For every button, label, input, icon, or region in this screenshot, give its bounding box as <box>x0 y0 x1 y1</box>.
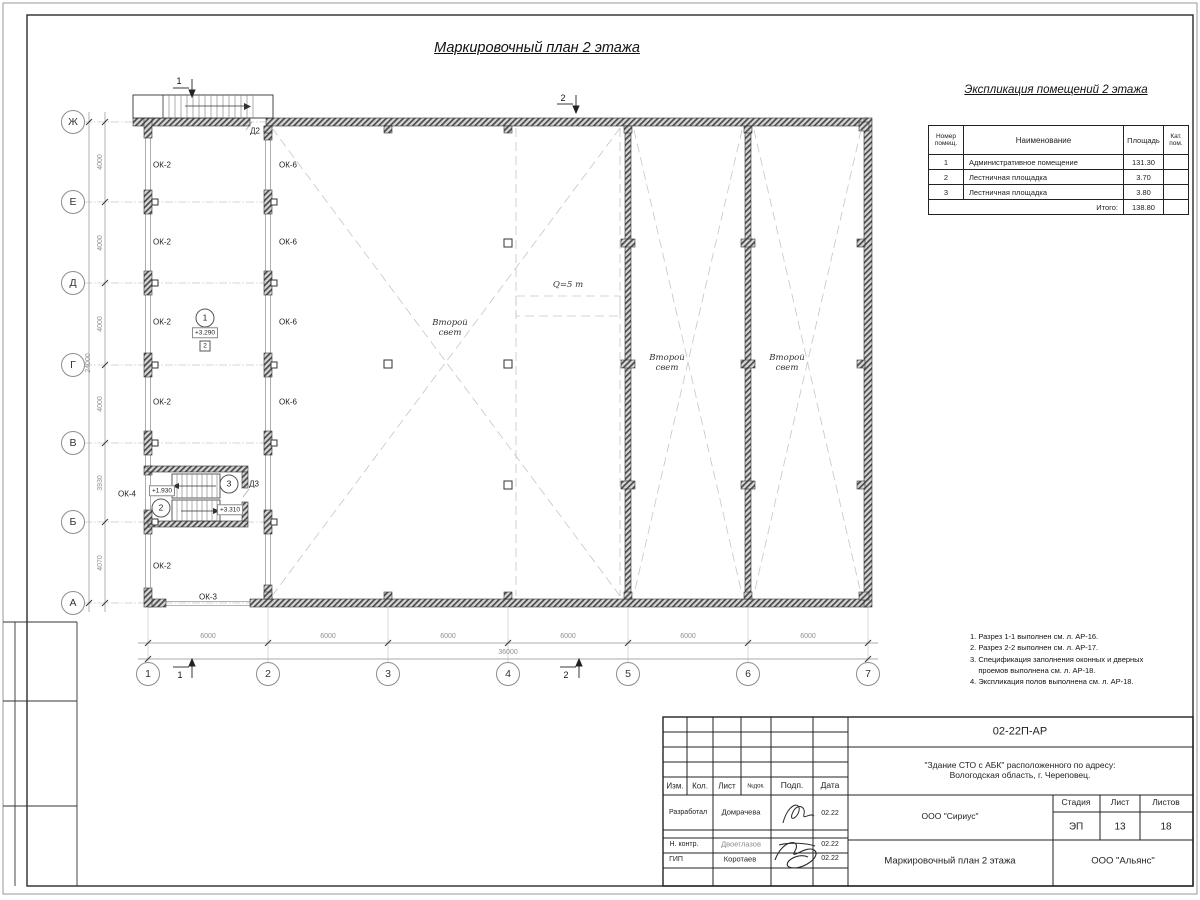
table-header-row: Номер помещ. Наименование Площадь Кат. п… <box>929 126 1189 155</box>
cell-area: 3.80 <box>1124 185 1164 200</box>
total-label: Итого: <box>929 200 1124 215</box>
col-header-cat: Кат. пом. <box>1164 126 1189 155</box>
drawing-sheet: Маркировочный план 2 этажа Экспликация п… <box>0 0 1200 900</box>
walls <box>133 118 872 607</box>
cell-num: 1 <box>929 155 964 170</box>
axis-lines <box>84 122 266 603</box>
crane-bridge-outline <box>516 296 620 316</box>
cell-cat <box>1164 170 1189 185</box>
interior-stair <box>172 122 252 521</box>
col-header-num: Номер помещ. <box>929 126 964 155</box>
cell-num: 3 <box>929 185 964 200</box>
total-value: 138.80 <box>1124 200 1164 215</box>
titleblock-grid <box>663 717 1193 886</box>
table-row: 3 Лестничная площадка 3.80 <box>929 185 1189 200</box>
cell-cat <box>1164 185 1189 200</box>
dimension-lines <box>89 112 878 659</box>
cell-name: Лестничная площадка <box>964 170 1124 185</box>
signature-icon <box>775 805 816 868</box>
drawing-notes: 1. Разрез 1-1 выполнен см. л. АР-16. 2. … <box>970 631 1200 687</box>
plan-title: Маркировочный план 2 этажа <box>434 40 640 56</box>
cell-cat <box>1164 200 1189 215</box>
dimension-ticks <box>86 119 871 662</box>
window-lines <box>146 126 271 606</box>
room-explication-table: Номер помещ. Наименование Площадь Кат. п… <box>928 125 1189 215</box>
cell-area: 3.70 <box>1124 170 1164 185</box>
void-dashed-lines <box>272 128 861 596</box>
room-table-title: Экспликация помещений 2 этажа <box>964 84 1147 96</box>
side-stamp-table <box>3 622 77 886</box>
grid-extension-lines <box>148 608 868 663</box>
col-header-name: Наименование <box>964 126 1124 155</box>
table-row: 1 Административное помещение 131.30 <box>929 155 1189 170</box>
col-header-area: Площадь <box>1124 126 1164 155</box>
table-total-row: Итого: 138.80 <box>929 200 1189 215</box>
cell-num: 2 <box>929 170 964 185</box>
table-row: 2 Лестничная площадка 3.70 <box>929 170 1189 185</box>
cell-name: Лестничная площадка <box>964 185 1124 200</box>
exterior-stair <box>133 95 273 118</box>
section-arrows <box>173 79 582 678</box>
cell-cat <box>1164 155 1189 170</box>
cell-name: Административное помещение <box>964 155 1124 170</box>
cell-area: 131.30 <box>1124 155 1164 170</box>
